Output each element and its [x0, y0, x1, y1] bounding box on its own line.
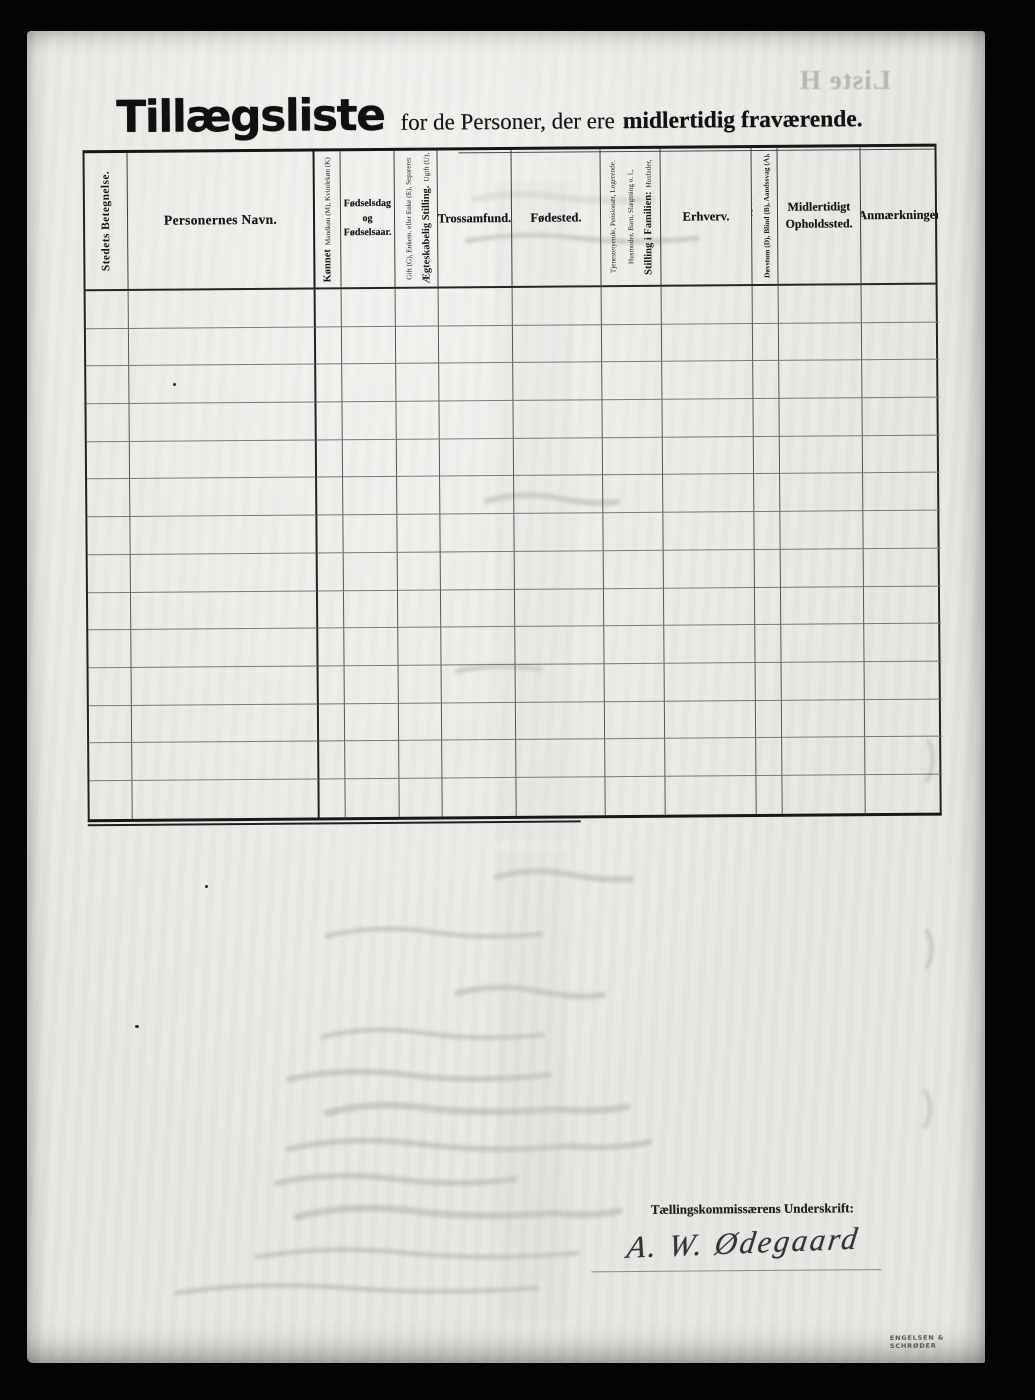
table-cell: [665, 701, 756, 739]
table-cell: [439, 363, 513, 401]
column-label: Trossamfund.: [438, 209, 512, 228]
table-cell: [780, 436, 863, 474]
table-cell: [87, 517, 130, 555]
table-cell: [316, 289, 342, 327]
table-cell: [755, 587, 781, 625]
table-cell: [342, 402, 396, 440]
column-label: Anmærkninger: [860, 206, 938, 225]
column-header-erhverv: Erhverv.: [660, 148, 752, 285]
table-cell: [317, 515, 343, 553]
table-cell: [665, 663, 756, 701]
table-cell: [399, 703, 442, 741]
table-cell: [132, 666, 319, 705]
table-cell: [440, 514, 514, 552]
table-cell: [398, 628, 441, 666]
table-cell: [343, 440, 397, 478]
table-cell: [398, 590, 441, 628]
census-table: Stedets Betegnelse. Personernes Navn. Kø…: [82, 144, 941, 822]
table-cell: [396, 402, 439, 440]
table-cell: [781, 549, 864, 587]
scanned-photo-frame: Liste H: [0, 0, 1035, 1400]
column-header-fodested: Fødested.: [511, 149, 601, 286]
table-cell: [319, 704, 345, 742]
table-cell: [131, 629, 318, 668]
table-cell: [516, 739, 605, 777]
table-cell: [396, 364, 439, 402]
table-cell: [345, 703, 399, 741]
table-cell: [399, 665, 442, 703]
column-header-midlertidigt-opholdssted: Midlertidigt Opholdssted.: [777, 147, 861, 284]
table-cell: [88, 592, 131, 630]
table-cell: [865, 661, 942, 699]
table-cell: [342, 327, 396, 365]
table-cell: [753, 399, 779, 437]
table-cell: [515, 589, 604, 627]
table-cell: [782, 775, 865, 813]
table-body: [86, 285, 940, 819]
table-cell: [516, 777, 605, 815]
column-header-anmaerkninger: Anmærkninger: [860, 147, 938, 284]
table-cell: [345, 741, 399, 779]
table-cell: [344, 628, 398, 666]
table-cell: [864, 624, 941, 662]
census-form-page: Liste H: [27, 31, 985, 1363]
table-cell: [129, 403, 316, 442]
table-cell: [317, 478, 343, 516]
table-cell: [665, 738, 756, 776]
table-cell: [513, 287, 602, 325]
table-cell: [86, 329, 129, 367]
table-cell: [753, 286, 779, 324]
table-cell: [662, 361, 753, 399]
column-sublabel: Mandkøn (M), Kvindekøn (K): [323, 157, 332, 245]
table-cell: [862, 285, 939, 323]
table-cell: [782, 737, 865, 775]
column-header-stedets-betegnelse: Stedets Betegnelse.: [85, 153, 129, 289]
table-cell: [88, 630, 131, 668]
table-cell: [756, 738, 782, 776]
table-cell: [604, 588, 664, 626]
table-cell: [87, 479, 130, 517]
table-cell: [753, 324, 779, 362]
table-cell: [754, 512, 780, 550]
table-cell: [130, 516, 317, 555]
table-cell: [440, 439, 514, 477]
table-cell: [318, 553, 344, 591]
table-cell: [316, 327, 342, 365]
table-cell: [129, 289, 316, 328]
table-cell: [319, 742, 345, 780]
table-cell: [130, 478, 317, 517]
column-header-dovstum-blind: Døvstum (D), Blind (B), Aandssvag (A), S…: [751, 148, 778, 284]
table-cell: [782, 700, 865, 738]
table-cell: [131, 553, 318, 592]
table-cell: [442, 665, 516, 703]
table-cell: [516, 702, 605, 740]
table-cell: [515, 626, 604, 664]
column-label: Erhverv.: [683, 207, 730, 225]
table-cell: [864, 586, 941, 624]
table-cell: [862, 398, 939, 436]
table-cell: [396, 326, 439, 364]
table-cell: [781, 587, 864, 625]
table-cell: [602, 362, 662, 400]
table-cell: [344, 590, 398, 628]
column-label: Midlertidigt Opholdssted.: [779, 198, 859, 233]
column-header-personernes-navn: Personernes Navn.: [128, 151, 316, 288]
table-cell: [664, 625, 755, 663]
table-cell: [865, 737, 942, 775]
table-cell: [397, 477, 440, 515]
table-cell: [514, 513, 603, 551]
table-cell: [342, 364, 396, 402]
table-cell: [441, 589, 515, 627]
table-cell: [602, 400, 662, 438]
table-cell: [603, 513, 663, 551]
table-cell: [862, 360, 939, 398]
table-cell: [663, 512, 754, 550]
table-cell: [319, 779, 345, 817]
table-cell: [756, 700, 782, 738]
table-cell: [514, 476, 603, 514]
column-header-aegteskabelig-stilling: Ægteskabelig Stilling. Ugift (U), Gift (…: [394, 151, 438, 287]
table-cell: [86, 404, 129, 442]
column-label: Fødested.: [530, 208, 581, 227]
table-cell: [318, 628, 344, 666]
table-cell: [604, 551, 664, 589]
table-cell: [780, 511, 863, 549]
table-cell: [781, 624, 864, 662]
table-cell: [605, 777, 665, 815]
table-cell: [779, 398, 862, 436]
column-label: Ægteskabelig Stilling.: [421, 186, 433, 284]
table-cell: [345, 666, 399, 704]
table-cell: [442, 740, 516, 778]
table-cell: [513, 400, 602, 438]
table-cell: [132, 779, 319, 818]
table-cell: [343, 515, 397, 553]
signature-label: Tællingskommissærens Underskrift:: [651, 1200, 854, 1218]
table-cell: [665, 776, 756, 814]
table-cell: [605, 739, 665, 777]
table-cell: [779, 361, 862, 399]
table-cell: [398, 552, 441, 590]
table-header-row: Stedets Betegnelse. Personernes Navn. Kø…: [85, 147, 936, 292]
column-header-trossamfund: Trossamfund.: [437, 150, 512, 287]
form-title-regular: for de Personer, der ere: [400, 108, 614, 136]
table-cell: [317, 440, 343, 478]
table-cell: [89, 781, 132, 819]
table-cell: [864, 548, 941, 586]
table-cell: [604, 626, 664, 664]
table-cell: [89, 743, 132, 781]
column-label: Stilling i Familien:: [642, 191, 654, 275]
table-cell: [316, 402, 342, 440]
table-cell: [86, 291, 129, 329]
table-cell: [515, 551, 604, 589]
table-cell: [662, 399, 753, 437]
table-cell: [753, 361, 779, 399]
table-cell: [441, 552, 515, 590]
table-cell: [779, 285, 862, 323]
table-cell: [442, 702, 516, 740]
column-header-fodselsdag: Fødselsdag og Fødselsaar.: [340, 151, 395, 287]
table-cell: [513, 363, 602, 401]
table-cell: [755, 550, 781, 588]
table-cell: [862, 322, 939, 360]
table-cell: [440, 476, 514, 514]
table-cell: [603, 438, 663, 476]
table-cell: [439, 401, 513, 439]
table-cell: [396, 289, 439, 327]
table-cell: [132, 742, 319, 781]
column-header-konnet: Kønnet Mandkøn (M), Kvindekøn (K): [315, 151, 342, 287]
printer-imprint: ENGELSEN & SCHRØDER: [890, 1333, 985, 1350]
table-cell: [342, 289, 396, 327]
table-cell: [513, 325, 602, 363]
table-cell: [514, 438, 603, 476]
column-label: Personernes Navn.: [164, 210, 277, 230]
table-cell: [343, 477, 397, 515]
table-cell: [865, 699, 942, 737]
table-cell: [316, 365, 342, 403]
table-cell: [663, 474, 754, 512]
table-cell: [754, 474, 780, 512]
table-cell: [87, 442, 130, 480]
column-label: Stedets Betegnelse.: [100, 171, 113, 271]
table-cell: [397, 439, 440, 477]
table-cell: [130, 440, 317, 479]
table-cell: [89, 706, 132, 744]
form-title: Tillægsliste for de Personer, der ere mi…: [116, 86, 946, 144]
table-cell: [602, 287, 662, 325]
table-cell: [129, 365, 316, 404]
table-cell: [664, 550, 755, 588]
table-cell: [516, 664, 605, 702]
table-cell: [863, 435, 940, 473]
table-cell: [756, 663, 782, 701]
table-cell: [439, 288, 513, 326]
table-cell: [603, 475, 663, 513]
table-cell: [439, 326, 513, 364]
table-cell: [756, 776, 782, 814]
table-cell: [441, 627, 515, 665]
table-cell: [662, 324, 753, 362]
table-cell: [442, 778, 516, 816]
table-cell: [780, 474, 863, 512]
table-cell: [397, 515, 440, 553]
table-cell: [132, 704, 319, 743]
table-cell: [129, 327, 316, 366]
table-cell: [399, 778, 442, 816]
table-cell: [345, 779, 399, 817]
table-cell: [399, 741, 442, 779]
table-cell: [663, 437, 754, 475]
column-label: Kønnet: [322, 249, 333, 282]
table-cell: [131, 591, 318, 630]
table-cell: [779, 323, 862, 361]
table-cell: [89, 668, 132, 706]
column-label: Fødselsdag og Fødselsaar.: [342, 197, 393, 241]
table-cell: [319, 666, 345, 704]
table-cell: [344, 553, 398, 591]
table-cell: [318, 591, 344, 629]
table-cell: [754, 437, 780, 475]
table-cell: [863, 511, 940, 549]
table-cell: [662, 286, 753, 324]
form-content: Tillægsliste for de Personer, der ere mi…: [27, 31, 985, 1363]
form-title-bold: midlertidig fraværende.: [623, 106, 863, 135]
signature-handwriting: A. W. Ødegaard: [625, 1220, 862, 1265]
table-cell: [605, 664, 665, 702]
table-cell: [664, 588, 755, 626]
table-cell: [86, 366, 129, 404]
form-title-main: Tillægsliste: [116, 90, 385, 143]
table-cell: [88, 555, 131, 593]
column-label: Døvstum (D), Blind (B), Aandssvag (A), S…: [751, 154, 771, 279]
table-cell: [863, 473, 940, 511]
table-cell: [865, 775, 942, 813]
signature-rule: [591, 1269, 881, 1272]
table-cell: [605, 701, 665, 739]
table-cell: [755, 625, 781, 663]
table-cell: [602, 324, 662, 362]
column-header-stilling-i-familien: Stilling i Familien: Husfader, Husmoder,…: [600, 149, 661, 285]
table-cell: [782, 662, 865, 700]
